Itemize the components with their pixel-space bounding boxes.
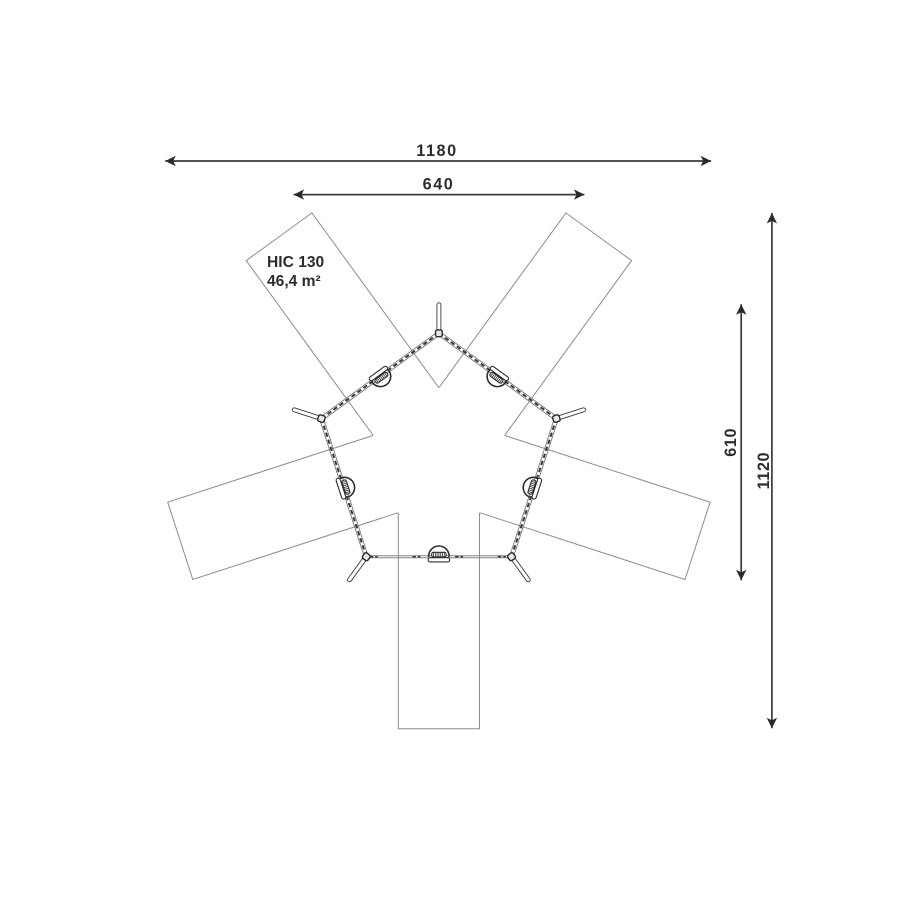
svg-text:610: 610 bbox=[722, 428, 740, 457]
svg-text:1120: 1120 bbox=[755, 452, 773, 490]
svg-text:1180: 1180 bbox=[416, 142, 458, 160]
svg-text:640: 640 bbox=[423, 176, 455, 194]
svg-text:HIC 130: HIC 130 bbox=[267, 254, 325, 271]
svg-text:46,4 m²: 46,4 m² bbox=[267, 273, 321, 290]
